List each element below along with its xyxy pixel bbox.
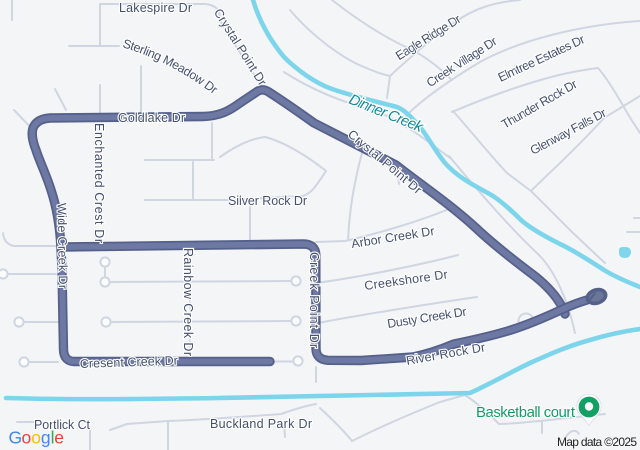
svg-text:Silver Rock Dr: Silver Rock Dr: [228, 194, 307, 208]
svg-text:g: g: [41, 428, 51, 448]
svg-text:Basketball court: Basketball court: [476, 404, 576, 421]
svg-text:Goldlake Dr: Goldlake Dr: [118, 111, 185, 125]
svg-text:Creek Point Dr: Creek Point Dr: [307, 252, 321, 348]
svg-text:Rainbow Creek Dr: Rainbow Creek Dr: [181, 248, 195, 356]
svg-text:Wide Creek Dr: Wide Creek Dr: [55, 203, 70, 289]
svg-text:G: G: [9, 428, 23, 448]
svg-text:Enchanted Crest Dr: Enchanted Crest Dr: [92, 123, 106, 243]
svg-text:Map data ©2025: Map data ©2025: [557, 435, 637, 449]
svg-text:o: o: [22, 428, 32, 448]
svg-text:Lakespire Dr: Lakespire Dr: [119, 1, 192, 15]
svg-text:e: e: [54, 428, 64, 448]
svg-text:o: o: [31, 428, 41, 448]
svg-text:Buckland Park Dr: Buckland Park Dr: [210, 417, 312, 431]
